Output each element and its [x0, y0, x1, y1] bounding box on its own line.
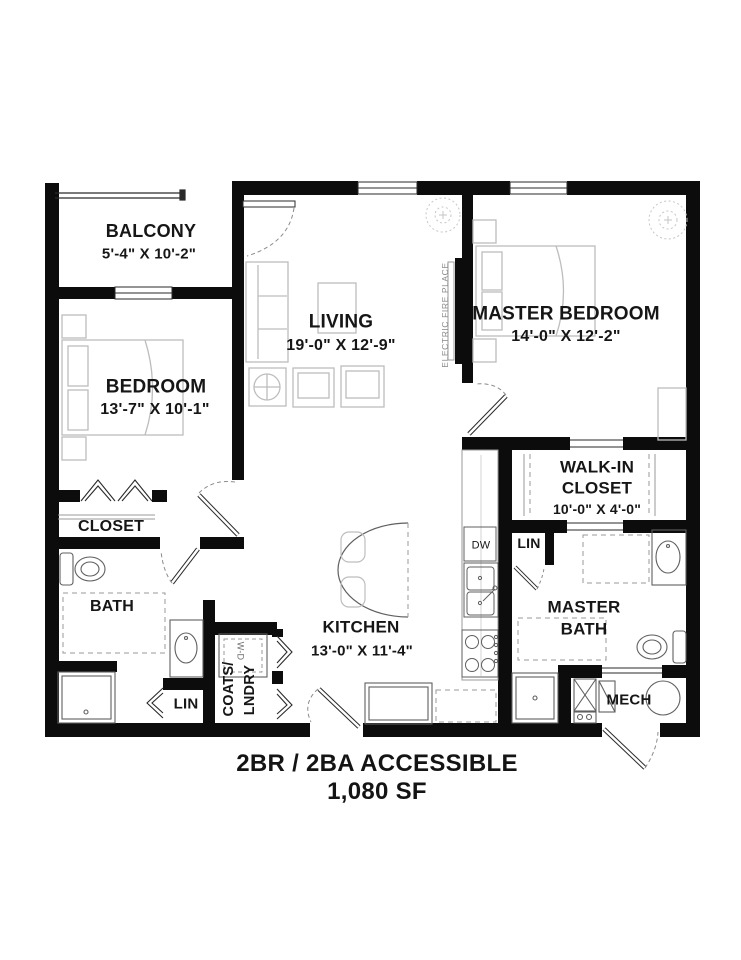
- plan-area: 1,080 SF: [327, 778, 427, 806]
- balcony-railing: [55, 190, 185, 200]
- label-master-bath-line2: BATH: [561, 621, 608, 638]
- label-living-dims: 19'-0" X 12'-9": [286, 338, 395, 354]
- label-bedroom: BEDROOM: [106, 378, 207, 397]
- label-balcony-dims: 5'-4" X 10'-2": [102, 247, 196, 262]
- toilet: [637, 631, 686, 663]
- master-linen-door: [515, 567, 544, 589]
- entry-door: [308, 689, 359, 727]
- nightstand: [473, 339, 496, 362]
- pillow: [68, 390, 88, 430]
- label-dw: DW: [472, 541, 491, 552]
- stove: [462, 630, 498, 677]
- counter: [462, 450, 498, 680]
- window-master-bedroom: [510, 182, 567, 194]
- plant-icon: [426, 198, 460, 232]
- label-coats: COATS/: [222, 662, 237, 717]
- bath-door: [161, 549, 198, 583]
- living-furniture: [246, 262, 384, 407]
- label-lin-master: LIN: [517, 536, 540, 550]
- label-walk-in-dims: 10'-0" X 4'-0": [553, 502, 641, 516]
- vanity-sink: [652, 530, 686, 585]
- armchair: [293, 368, 334, 407]
- label-kitchen-dims: 13'-0" X 11'-4": [311, 644, 413, 659]
- mech-door: [604, 729, 658, 768]
- label-master-bedroom-dims: 14'-0" X 12'-2": [511, 329, 620, 345]
- chair: [341, 577, 365, 607]
- counter-clearance: [436, 690, 496, 722]
- chair: [341, 532, 365, 562]
- vanity-sink: [170, 620, 203, 677]
- window-bedroom: [115, 287, 172, 299]
- armchair: [341, 366, 384, 407]
- label-mech: MECH: [607, 693, 652, 708]
- label-lndry: LNDRY: [243, 665, 258, 715]
- bedroom-closet-bifold: [81, 480, 152, 501]
- equipment-box: [574, 679, 596, 723]
- clearance-box: [583, 535, 649, 583]
- label-wd: W-D: [236, 642, 245, 660]
- bedroom-door: [199, 481, 238, 535]
- nightstand: [62, 437, 86, 460]
- balcony-door: [243, 201, 295, 256]
- dining-table: [338, 523, 408, 617]
- window-living: [358, 182, 417, 194]
- kitchen-fixtures: [338, 450, 498, 724]
- label-kitchen: KITCHEN: [323, 619, 400, 636]
- master-bedroom-door: [469, 384, 506, 434]
- plant-icon: [649, 201, 687, 239]
- label-bath: BATH: [90, 599, 134, 615]
- shower: [512, 673, 558, 723]
- label-master-bath-line1: MASTER: [548, 599, 621, 616]
- nightstand: [473, 220, 496, 243]
- dresser: [658, 388, 686, 440]
- label-living: LIVING: [309, 313, 374, 332]
- pillow: [68, 346, 88, 386]
- refrigerator: [365, 683, 432, 724]
- label-master-bedroom: MASTER BEDROOM: [472, 305, 660, 324]
- sofa: [246, 262, 288, 362]
- label-walk-in-line1: WALK-IN: [560, 459, 634, 476]
- label-balcony: BALCONY: [106, 222, 196, 240]
- shower: [58, 672, 115, 723]
- label-closet: CLOSET: [78, 519, 144, 535]
- floor-plan-page: BALCONY 5'-4" X 10'-2" BEDROOM 13'-7" X …: [0, 0, 741, 960]
- linen-hall-bifold: [147, 688, 163, 718]
- label-lin-hall: LIN: [174, 697, 199, 712]
- label-walk-in-line2: CLOSET: [562, 480, 632, 497]
- label-bedroom-dims: 13'-7" X 10'-1": [100, 402, 209, 418]
- pillow: [482, 252, 502, 290]
- label-electric-fireplace: ELECTRIC FIRE PLACE: [441, 262, 450, 367]
- toilet: [60, 553, 105, 585]
- nightstand: [62, 315, 86, 338]
- plan-title: 2BR / 2BA ACCESSIBLE: [236, 750, 518, 778]
